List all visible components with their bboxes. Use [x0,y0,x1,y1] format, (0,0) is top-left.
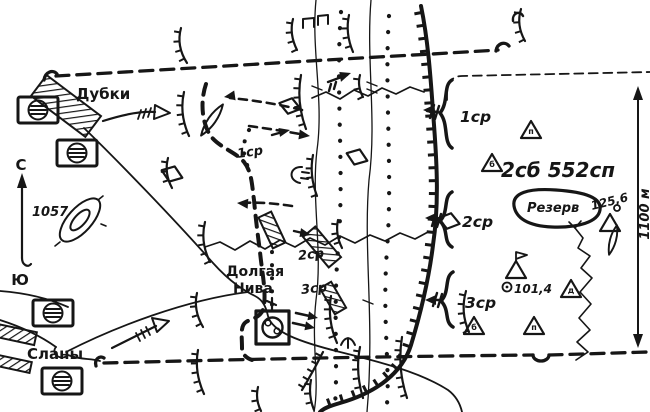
tactical-map: Дубки Сланы Долгая Нива 2сб 552сп Резерв… [0,0,650,412]
frontage-depth-label: 1100 м [638,188,650,240]
company-sector-braces [440,80,453,327]
dolgaya-niva-label-1: Долгая [226,264,284,280]
radio-station-icon [33,300,73,326]
tactical-map-canvas: Дубки Сланы Долгая Нива 2сб 552сп Резерв… [0,0,650,412]
trench-teeth [327,12,437,406]
elevation-1057: 1057 [32,205,69,220]
company3-outpost-label: 3ср [300,280,327,298]
hill-1057-contours [53,192,107,248]
radio-station-icon [57,140,97,166]
company2-sector-label: 2ср [462,213,493,231]
company1-outpost-label: 1ср [236,143,264,161]
emplacement-diamond-icon [159,163,185,186]
slany-label: Сланы [27,345,83,363]
boundary-dashed-bottom [96,352,648,366]
marker-letter: д [568,286,575,295]
company2-outpost-label: 2ср [297,246,324,264]
emplacement-diamond-icon [344,146,370,169]
rear-area-dashed-line [447,72,650,100]
compass-south-label: Ю [11,271,29,289]
command-post-icon [256,298,289,344]
marker-letter: п [528,127,534,136]
battalion-label: 2сб 552сп [501,158,615,182]
marker-letter: п [531,323,537,332]
trench-symbols [161,9,525,411]
boundary-dashed-top [44,43,509,80]
communication-lines [312,0,377,412]
radio-station-icon [42,368,82,394]
bracket-positions [303,13,523,28]
marker-letter: б [489,159,495,169]
march-route-arrow [103,105,170,121]
marker-letter: б [471,322,477,332]
compass-north-label: С [15,156,26,174]
march-route-arrow [112,318,169,348]
compass-rose [17,173,31,266]
company3-sector-label: 3ср [465,294,496,312]
elevation-125-6: 125,6 [589,190,629,213]
reserve-label: Резерв [527,201,579,216]
dolgaya-niva-label-2: Нива [233,281,273,297]
company1-sector-label: 1ср [460,108,491,126]
observation-post-icon [506,252,527,278]
geodetic-point-101 [503,283,512,292]
dubki-label: Дубки [76,85,130,103]
elevation-101-4: 101,4 [514,282,552,296]
